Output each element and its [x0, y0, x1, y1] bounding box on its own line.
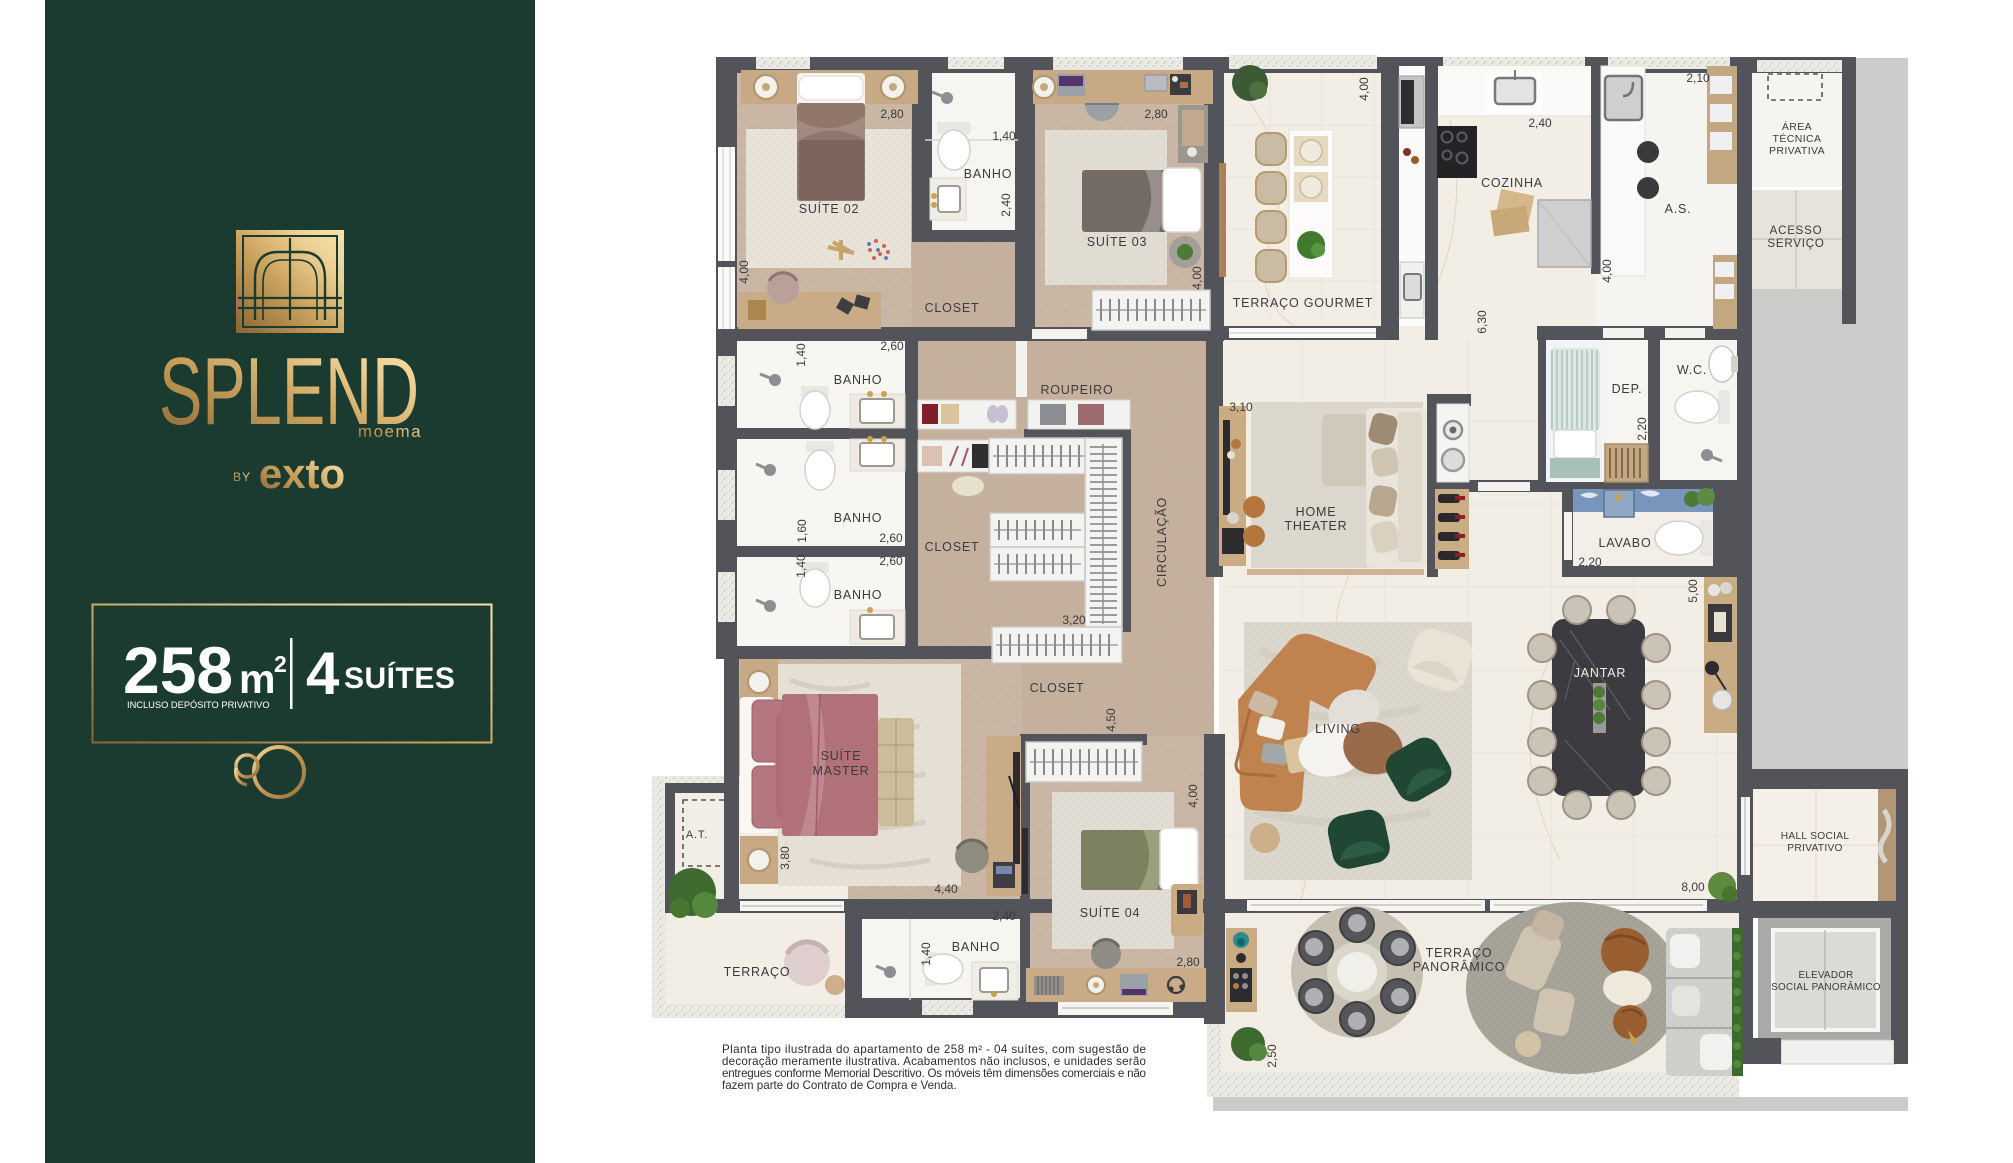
svg-text:BANHO: BANHO [964, 167, 1012, 181]
svg-text:6,30: 6,30 [1475, 310, 1489, 334]
svg-text:THEATER: THEATER [1284, 519, 1347, 533]
svg-text:2,40: 2,40 [992, 909, 1016, 923]
svg-text:2,80: 2,80 [1144, 107, 1168, 121]
svg-text:8,00: 8,00 [1681, 880, 1705, 894]
svg-text:2,60: 2,60 [879, 554, 903, 568]
svg-text:SERVIÇO: SERVIÇO [1767, 238, 1824, 250]
svg-text:ROUPEIRO: ROUPEIRO [1040, 383, 1113, 397]
svg-text:2,80: 2,80 [1176, 955, 1200, 969]
svg-text:4,00: 4,00 [1190, 266, 1204, 290]
svg-text:CLOSET: CLOSET [1030, 681, 1085, 695]
svg-text:COZINHA: COZINHA [1481, 176, 1543, 190]
svg-text:PRIVATIVO: PRIVATIVO [1787, 843, 1843, 854]
svg-text:2,60: 2,60 [879, 531, 903, 545]
svg-text:PRIVATIVA: PRIVATIVA [1769, 145, 1825, 157]
svg-text:SUÍTE: SUÍTE [821, 748, 862, 763]
svg-text:JANTAR: JANTAR [1574, 666, 1627, 680]
svg-text:BANHO: BANHO [834, 373, 882, 387]
svg-text:m: m [239, 656, 275, 702]
svg-text:2,40: 2,40 [1528, 116, 1552, 130]
svg-text:1,40: 1,40 [919, 942, 933, 966]
svg-text:2,10: 2,10 [1686, 71, 1710, 85]
svg-text:LAVABO: LAVABO [1599, 536, 1652, 550]
svg-text:SUÍTE 03: SUÍTE 03 [1087, 234, 1148, 249]
svg-text:ACESSO: ACESSO [1770, 225, 1823, 237]
svg-text:3,10: 3,10 [1229, 400, 1253, 414]
svg-text:INCLUSO DEPÓSITO PRIVATIVO: INCLUSO DEPÓSITO PRIVATIVO [127, 700, 270, 710]
svg-text:4,40: 4,40 [934, 882, 958, 896]
svg-text:HALL SOCIAL: HALL SOCIAL [1781, 831, 1850, 842]
svg-text:2,60: 2,60 [880, 339, 904, 353]
svg-text:4,50: 4,50 [1104, 708, 1118, 732]
svg-text:CLOSET: CLOSET [925, 540, 980, 554]
svg-text:5,00: 5,00 [1686, 579, 1700, 603]
svg-text:TERRAÇO: TERRAÇO [724, 965, 791, 979]
svg-text:ÁREA: ÁREA [1782, 120, 1812, 133]
svg-text:ELEVADOR: ELEVADOR [1798, 970, 1853, 981]
svg-text:A.S.: A.S. [1665, 202, 1692, 216]
svg-text:2,50: 2,50 [1265, 1044, 1279, 1068]
svg-text:SOCIAL PANORÂMICO: SOCIAL PANORÂMICO [1771, 982, 1881, 993]
svg-text:TÉCNICA: TÉCNICA [1773, 132, 1822, 145]
svg-text:moema: moema [358, 422, 422, 441]
svg-text:3,20: 3,20 [1062, 613, 1086, 627]
svg-text:4,00: 4,00 [1357, 77, 1371, 101]
svg-text:4: 4 [306, 640, 340, 707]
svg-text:SUÍTES: SUÍTES [344, 661, 455, 695]
svg-text:fazem parte do Contrato de Com: fazem parte do Contrato de Compra e Vend… [722, 1079, 957, 1092]
svg-text:2,20: 2,20 [1578, 555, 1602, 569]
svg-text:W.C.: W.C. [1677, 363, 1707, 377]
svg-text:TERRAÇO GOURMET: TERRAÇO GOURMET [1233, 296, 1373, 310]
svg-text:SUÍTE 04: SUÍTE 04 [1080, 905, 1141, 920]
svg-text:HOME: HOME [1296, 505, 1337, 519]
svg-text:DEP.: DEP. [1612, 382, 1643, 396]
svg-text:BANHO: BANHO [834, 511, 882, 525]
svg-text:2,40: 2,40 [999, 193, 1013, 217]
svg-text:4,00: 4,00 [1600, 259, 1614, 283]
svg-text:PANORÂMICO: PANORÂMICO [1413, 959, 1506, 974]
svg-text:4,00: 4,00 [737, 260, 751, 284]
svg-text:1,40: 1,40 [794, 343, 808, 367]
svg-text:1,60: 1,60 [795, 519, 809, 543]
svg-text:CLOSET: CLOSET [925, 301, 980, 315]
svg-text:BANHO: BANHO [952, 940, 1000, 954]
svg-text:TERRAÇO: TERRAÇO [1426, 946, 1493, 960]
svg-text:2,80: 2,80 [880, 107, 904, 121]
svg-text:4,00: 4,00 [1186, 784, 1200, 808]
svg-text:CIRCULAÇÃO: CIRCULAÇÃO [1155, 497, 1169, 587]
svg-text:SUÍTE 02: SUÍTE 02 [799, 201, 860, 216]
svg-text:2: 2 [274, 651, 287, 677]
svg-text:A.T.: A.T. [686, 829, 708, 841]
svg-text:LIVING: LIVING [1315, 722, 1361, 736]
svg-text:MASTER: MASTER [813, 764, 870, 778]
svg-text:2,20: 2,20 [1635, 417, 1649, 441]
svg-text:exto: exto [259, 450, 345, 497]
svg-text:BY: BY [233, 470, 251, 484]
svg-text:1,40: 1,40 [794, 554, 808, 578]
svg-text:3,80: 3,80 [778, 846, 792, 870]
svg-text:1,40: 1,40 [992, 129, 1016, 143]
svg-text:BANHO: BANHO [834, 588, 882, 602]
svg-text:258: 258 [123, 633, 233, 707]
